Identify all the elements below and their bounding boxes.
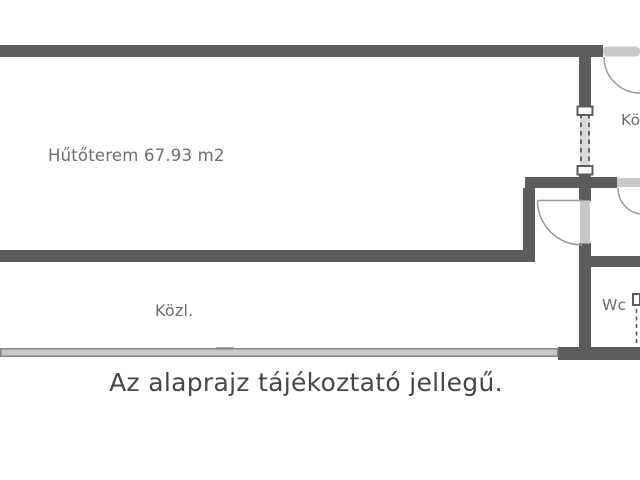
door-arc-top-right: [604, 57, 640, 93]
room-label-top-right-clipped: Kö: [621, 111, 640, 129]
room-label-hutoterem: Hűtőterem 67.93 m2: [48, 146, 225, 165]
room-label-wc: Wc: [602, 296, 626, 314]
opening-inner-right: [617, 178, 640, 187]
wall-right-vertical-upper: [579, 57, 591, 108]
wall-inner-horizontal: [525, 177, 617, 188]
wall-right-vertical-lower: [579, 243, 591, 353]
door-arc-vestibule: [538, 201, 583, 246]
floor-plan-canvas: Hűtőterem 67.93 m2 Közl. Wc Kö Az alapra…: [0, 0, 640, 480]
dashed-wall-cap-top: [578, 107, 593, 116]
wall-bottom-right: [558, 347, 640, 360]
wc-edge-door: [633, 294, 640, 344]
dashed-wall-section: [578, 107, 593, 175]
disclaimer-caption: Az alaprajz tájékoztató jellegű.: [109, 368, 503, 397]
door-arc-inner-right: [618, 188, 640, 214]
opening-vestibule-door: [580, 201, 590, 244]
floor-plan-svg: Hűtőterem 67.93 m2 Közl. Wc Kö Az alapra…: [0, 0, 640, 480]
wc-door-jamb-cap: [633, 294, 640, 305]
dashed-wall-cap-bottom: [578, 166, 593, 175]
wall-top: [0, 45, 603, 57]
wall-bottom-light: [1, 349, 558, 357]
wall-middle: [0, 250, 535, 262]
room-label-kozl: Közl.: [155, 301, 193, 320]
walls: [0, 45, 640, 360]
opening-top-right: [603, 47, 640, 57]
wall-wc-top: [591, 256, 640, 267]
room-labels: Hűtőterem 67.93 m2 Közl. Wc Kö: [48, 111, 640, 320]
